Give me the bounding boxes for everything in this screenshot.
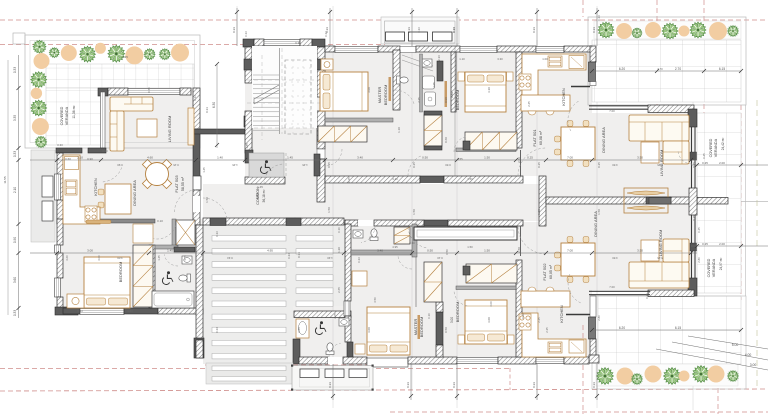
svg-text:0.50: 0.50 [445,249,449,255]
svg-text:0.33: 0.33 [452,382,456,388]
svg-text:0.90: 0.90 [87,157,93,161]
svg-text:0.33: 0.33 [244,31,248,37]
svg-text:3.00: 3.00 [487,317,491,323]
svg-text:1.40: 1.40 [217,156,223,160]
svg-text:60,05 m²: 60,05 m² [549,264,553,279]
svg-text:0.55: 0.55 [147,87,151,93]
svg-text:1.65: 1.65 [432,82,436,88]
svg-text:5.25: 5.25 [657,256,663,260]
svg-text:3.30: 3.30 [450,92,454,98]
svg-text:6.30: 6.30 [295,41,301,45]
svg-text:3.00: 3.00 [367,87,371,93]
svg-text:0.33: 0.33 [324,31,328,37]
svg-text:24,42 m²: 24,42 m² [721,138,725,151]
svg-text:0.33: 0.33 [13,310,17,316]
svg-text:1.55: 1.55 [457,157,463,161]
svg-text:1.00: 1.00 [542,57,548,61]
svg-text:0.33: 0.33 [532,27,536,33]
svg-text:3.40: 3.40 [357,156,363,160]
svg-text:0.25: 0.25 [527,156,533,160]
svg-text:0.25: 0.25 [412,162,416,168]
svg-text:2.50: 2.50 [517,157,521,163]
svg-text:24,97 m²: 24,97 m² [719,258,723,271]
svg-text:FLAT 501: FLAT 501 [532,129,537,147]
svg-text:5.25: 5.25 [657,163,663,167]
svg-text:LIVING ROOM: LIVING ROOM [167,116,172,143]
svg-text:3.00: 3.00 [87,249,93,253]
svg-text:11.55: 11.55 [3,176,7,184]
svg-text:2.70: 2.70 [657,67,663,71]
svg-text:0.25: 0.25 [645,293,649,299]
svg-text:FLAT 503: FLAT 503 [174,175,179,193]
svg-text:0.33: 0.33 [532,382,536,388]
svg-text:0.33: 0.33 [328,382,332,388]
svg-text:1.45: 1.45 [287,156,293,160]
svg-text:0.33: 0.33 [417,27,421,33]
svg-text:0.25: 0.25 [327,162,331,168]
svg-text:0.25: 0.25 [255,193,259,199]
svg-text:7.00: 7.00 [567,156,573,160]
svg-text:2.35: 2.35 [545,327,549,333]
svg-text:0.33: 0.33 [452,27,456,33]
svg-text:0.33: 0.33 [57,143,63,147]
svg-text:0.33: 0.33 [13,151,17,157]
svg-text:0.50: 0.50 [422,156,428,160]
svg-text:2.50: 2.50 [517,247,521,253]
svg-text:0.33: 0.33 [77,309,83,313]
svg-text:0.50: 0.50 [427,249,433,253]
svg-text:1.45: 1.45 [302,163,308,167]
svg-text:COVERED: COVERED [707,258,711,277]
svg-text:3.50: 3.50 [373,297,377,303]
svg-text:2.05: 2.05 [333,313,337,319]
svg-text:COVERED: COVERED [709,138,713,157]
svg-text:1.20: 1.20 [337,247,341,253]
svg-text:0.33: 0.33 [215,231,219,237]
svg-text:6.20: 6.20 [619,326,625,330]
svg-text:0.10: 0.10 [157,219,163,223]
svg-text:0.33: 0.33 [232,27,236,33]
svg-text:4.95: 4.95 [267,249,273,253]
svg-text:0.33: 0.33 [297,252,301,258]
svg-text:0.60: 0.60 [65,157,71,161]
svg-text:6.15: 6.15 [719,67,725,71]
svg-text:2.10: 2.10 [77,156,83,160]
svg-text:1.45: 1.45 [167,249,173,253]
svg-text:7.00: 7.00 [609,285,615,289]
svg-text:0.33: 0.33 [597,15,601,21]
svg-text:0.90: 0.90 [444,97,448,103]
svg-text:0.33: 0.33 [193,95,197,101]
svg-text:1.50: 1.50 [484,156,490,160]
svg-text:2.00: 2.00 [719,242,725,246]
svg-text:3.00: 3.00 [489,301,493,307]
svg-text:2.25: 2.25 [527,101,531,107]
svg-text:0.33: 0.33 [406,382,410,388]
svg-text:0.60: 0.60 [444,137,448,143]
svg-text:0.15: 0.15 [173,163,179,167]
svg-text:3.30: 3.30 [487,87,491,93]
svg-text:0.25: 0.25 [702,161,708,165]
svg-text:2.25: 2.25 [537,317,541,323]
svg-text:3.00: 3.00 [117,256,123,260]
svg-text:3.50: 3.50 [637,249,643,253]
svg-text:BEDROOM: BEDROOM [419,317,424,338]
svg-text:VERANDA: VERANDA [65,106,69,125]
svg-text:COVERED: COVERED [60,106,64,125]
svg-text:0.90: 0.90 [117,163,123,167]
svg-text:0.25: 0.25 [702,242,708,246]
svg-text:0.10: 0.10 [437,256,443,260]
svg-text:MASTER: MASTER [413,319,418,336]
svg-text:3.40: 3.40 [377,249,383,253]
svg-text:0.33: 0.33 [227,256,233,260]
svg-text:0.30: 0.30 [521,313,525,319]
svg-text:6.15: 6.15 [675,326,681,330]
svg-text:2.70: 2.70 [675,67,681,71]
svg-text:6.30: 6.30 [212,102,216,108]
svg-text:1.50: 1.50 [205,197,209,203]
svg-text:0.33: 0.33 [407,27,411,33]
svg-text:0.33: 0.33 [357,257,361,263]
svg-text:7.00: 7.00 [567,249,573,253]
svg-text:0.50: 0.50 [409,241,415,245]
svg-text:11,36 m²: 11,36 m² [72,105,76,119]
svg-text:6.20: 6.20 [619,67,625,71]
svg-text:1.75: 1.75 [183,255,187,261]
svg-text:VERANDA: VERANDA [714,138,718,157]
svg-text:0.90: 0.90 [102,149,108,153]
svg-text:0.15: 0.15 [347,177,351,183]
svg-text:2.80: 2.80 [697,257,701,263]
svg-text:2.36: 2.36 [437,55,441,61]
svg-text:1.45: 1.45 [257,185,263,189]
svg-text:1.50: 1.50 [597,209,601,215]
svg-text:7.00: 7.00 [609,109,615,113]
svg-text:0.33: 0.33 [205,107,209,113]
svg-text:BEDROOM: BEDROOM [118,262,123,283]
svg-text:3.00: 3.00 [750,363,757,367]
svg-text:3.60: 3.60 [65,255,69,261]
svg-text:0.33: 0.33 [13,67,17,73]
svg-text:60,08 m²: 60,08 m² [539,130,543,145]
svg-text:1.50: 1.50 [484,249,490,253]
svg-text:1.20: 1.20 [327,256,333,260]
svg-text:3.00: 3.00 [450,317,454,323]
svg-text:FLAT 502: FLAT 502 [542,263,547,281]
svg-text:2.80: 2.80 [597,315,601,321]
svg-text:BEDROOM: BEDROOM [383,85,388,106]
svg-text:KITCHEN: KITCHEN [561,88,566,106]
svg-text:0.25: 0.25 [697,227,701,233]
svg-text:1.50: 1.50 [467,245,473,249]
svg-text:BEDROOM: BEDROOM [455,90,460,111]
svg-text:3.50: 3.50 [612,256,618,260]
svg-text:3.40: 3.40 [392,177,398,181]
svg-text:0.10: 0.10 [427,313,431,319]
svg-text:2.65: 2.65 [337,287,341,293]
svg-text:LIVING ROOM: LIVING ROOM [658,230,663,257]
svg-text:3.00: 3.00 [127,309,133,313]
svg-text:58,55 m²: 58,55 m² [181,176,185,191]
svg-text:1.50: 1.50 [412,209,416,215]
svg-text:0.90: 0.90 [13,237,17,243]
svg-text:2.35: 2.35 [417,97,421,103]
svg-text:KITCHEN: KITCHEN [93,178,98,196]
svg-text:1.45: 1.45 [157,255,161,261]
svg-text:0.25: 0.25 [597,162,601,168]
svg-text:4.60: 4.60 [147,156,153,160]
svg-text:0.33: 0.33 [592,382,596,388]
svg-text:0.10: 0.10 [337,227,341,233]
svg-text:KITCHEN: KITCHEN [559,305,564,323]
svg-text:3.00: 3.00 [367,327,371,333]
svg-text:VERANDA: VERANDA [712,258,716,277]
svg-text:1.85: 1.85 [245,143,249,149]
svg-text:36,18 m²: 36,18 m² [262,189,266,203]
svg-text:2.05: 2.05 [297,327,301,333]
svg-text:0.33: 0.33 [215,327,219,333]
svg-text:DINING AREA: DINING AREA [601,127,606,153]
svg-text:3.30: 3.30 [497,57,503,61]
svg-text:3.35: 3.35 [122,55,128,59]
svg-text:1.50: 1.50 [467,177,473,181]
svg-text:4.95: 4.95 [392,245,398,249]
svg-text:0.50: 0.50 [444,327,448,333]
svg-text:2.00: 2.00 [719,161,725,165]
svg-text:2.10: 2.10 [13,187,17,193]
svg-text:3.35: 3.35 [13,115,17,121]
svg-text:0.25: 0.25 [692,215,696,221]
svg-text:1.45: 1.45 [202,167,206,173]
svg-text:0.33: 0.33 [592,27,596,33]
svg-text:BEDROOM: BEDROOM [455,302,460,323]
svg-text:3.50: 3.50 [637,156,643,160]
svg-text:3.00: 3.00 [97,255,101,261]
svg-text:0.50: 0.50 [445,163,451,167]
svg-text:0.25: 0.25 [537,162,541,168]
svg-text:3.50: 3.50 [612,163,618,167]
svg-text:1.45: 1.45 [232,163,238,167]
svg-text:1.10: 1.10 [397,127,401,133]
svg-text:0.25: 0.25 [702,153,706,159]
svg-text:1.10: 1.10 [459,57,465,61]
svg-text:DINING AREA: DINING AREA [132,180,137,206]
svg-text:MASTER: MASTER [377,87,382,104]
svg-text:4.00: 4.00 [745,353,752,357]
svg-text:5.00: 5.00 [732,343,739,347]
svg-text:0.33: 0.33 [287,253,291,259]
svg-text:1.50: 1.50 [327,207,331,213]
svg-text:3.60: 3.60 [13,277,17,283]
svg-text:0.25: 0.25 [692,162,696,168]
svg-text:1.50: 1.50 [537,209,541,215]
